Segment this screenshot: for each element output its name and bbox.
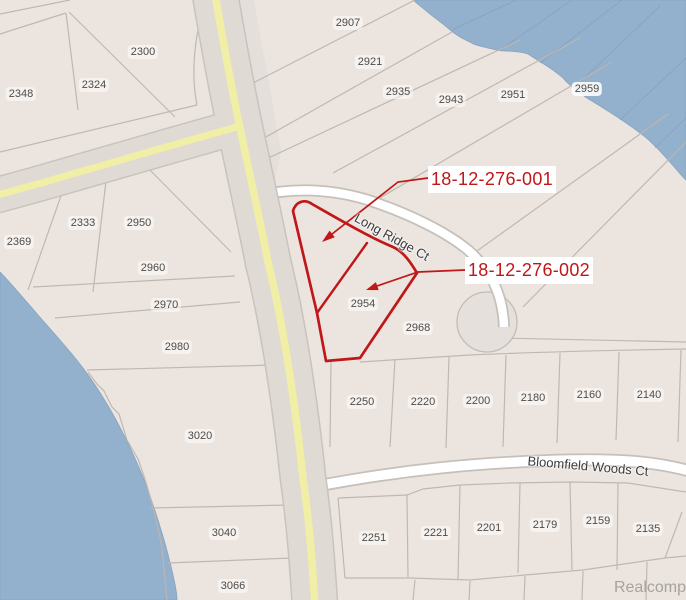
parcel-number-2333: 2333 [68, 216, 98, 230]
parcel-number-2954: 2954 [348, 297, 378, 311]
parcel-number-2324: 2324 [79, 78, 109, 92]
parcel-number-2179: 2179 [530, 518, 560, 532]
parcel-number-2220: 2220 [408, 395, 438, 409]
callout-parcel-id-002: 18-12-276-002 [465, 257, 593, 284]
parcel-number-2221: 2221 [421, 526, 451, 540]
plat-map: 2300232423482369233329502960297029803020… [0, 0, 686, 600]
parcel-number-2960: 2960 [138, 261, 168, 275]
parcel-number-2160: 2160 [574, 388, 604, 402]
street-label-bloomfield-woods-ct: Bloomfield Woods Ct [527, 453, 649, 479]
parcel-number-3020: 3020 [185, 429, 215, 443]
parcel-number-2907: 2907 [333, 16, 363, 30]
parcel-number-2180: 2180 [518, 391, 548, 405]
parcel-number-2959: 2959 [572, 82, 602, 96]
parcel-number-2250: 2250 [347, 395, 377, 409]
parcel-number-2951: 2951 [498, 88, 528, 102]
parcel-number-2968: 2968 [403, 321, 433, 335]
parcel-number-2943: 2943 [436, 93, 466, 107]
parcel-number-2300: 2300 [128, 45, 158, 59]
street-label-long-ridge-ct: Long Ridge Ct [352, 210, 432, 263]
parcel-number-2140: 2140 [634, 388, 664, 402]
parcel-number-2935: 2935 [383, 85, 413, 99]
parcel-number-2980: 2980 [162, 340, 192, 354]
callout-parcel-id-001: 18-12-276-001 [428, 166, 556, 193]
label-overlay: 2300232423482369233329502960297029803020… [0, 0, 686, 600]
parcel-number-2201: 2201 [474, 521, 504, 535]
parcel-number-2348: 2348 [6, 87, 36, 101]
parcel-number-2159: 2159 [583, 514, 613, 528]
parcel-number-3066: 3066 [218, 579, 248, 593]
parcel-number-2921: 2921 [355, 55, 385, 69]
parcel-number-3040: 3040 [209, 526, 239, 540]
parcel-number-2135: 2135 [633, 522, 663, 536]
parcel-number-2970: 2970 [151, 298, 181, 312]
parcel-number-2950: 2950 [124, 216, 154, 230]
parcel-number-2369: 2369 [4, 235, 34, 249]
parcel-number-2251: 2251 [359, 531, 389, 545]
parcel-number-2200: 2200 [463, 394, 493, 408]
realcomp-watermark: Realcomp [612, 579, 686, 597]
